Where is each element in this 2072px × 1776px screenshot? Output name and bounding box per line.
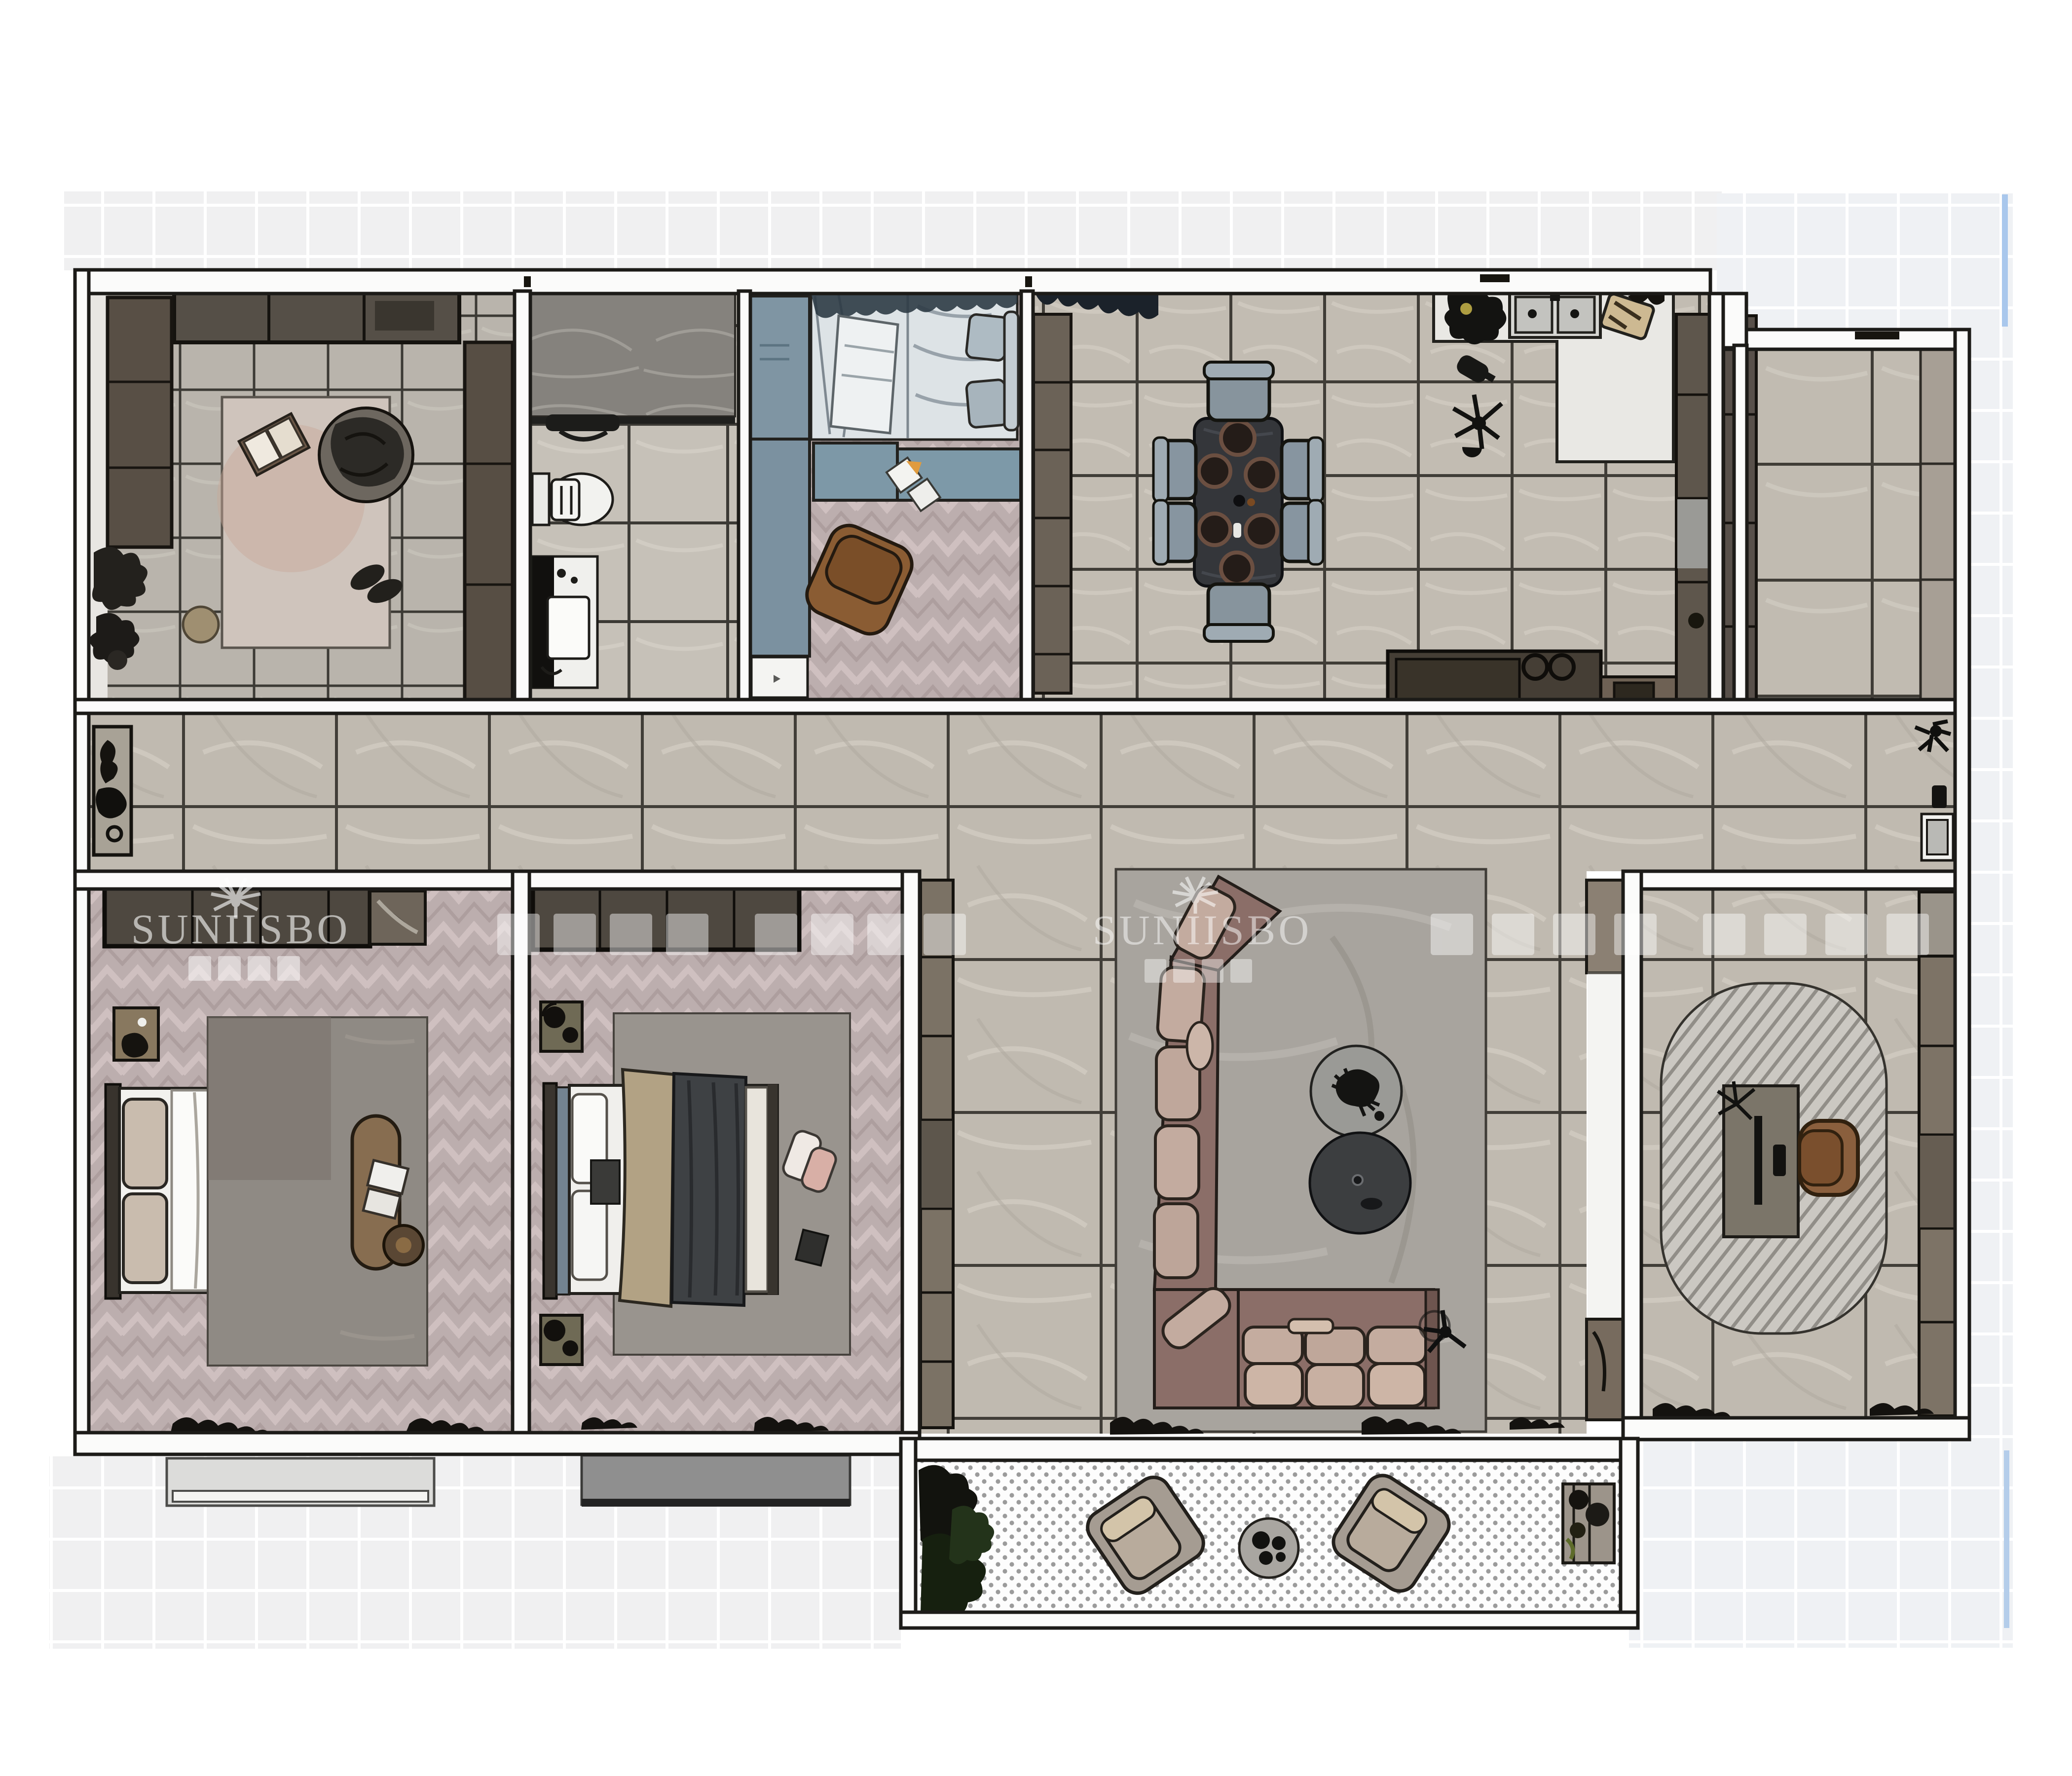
svg-text:SUNIISBO: SUNIISBO — [1093, 906, 1312, 954]
svg-text:SUNIISBO: SUNIISBO — [131, 905, 351, 953]
